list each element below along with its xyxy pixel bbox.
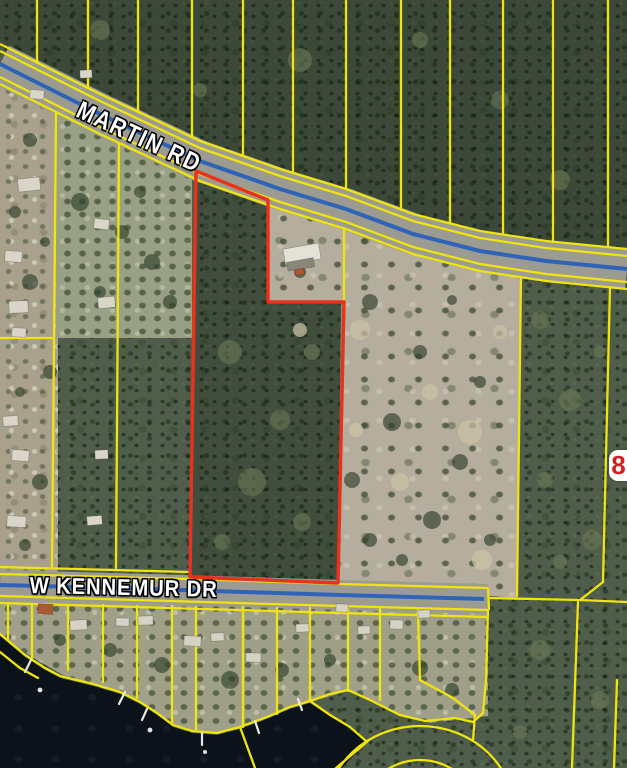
map-marker-8[interactable]: 8 (609, 450, 627, 481)
kennemur-end-cap (488, 588, 489, 610)
road-label-w-kennemur-dr: W KENNEMUR DR (29, 572, 218, 603)
highlighted-parcel-outline[interactable] (190, 171, 344, 583)
shoreline-line (0, 634, 310, 733)
map-canvas[interactable]: MARTIN RD W KENNEMUR DR 8 (0, 0, 627, 768)
kennemur-extension-line (489, 598, 627, 602)
notch-parcel-house (283, 243, 321, 276)
